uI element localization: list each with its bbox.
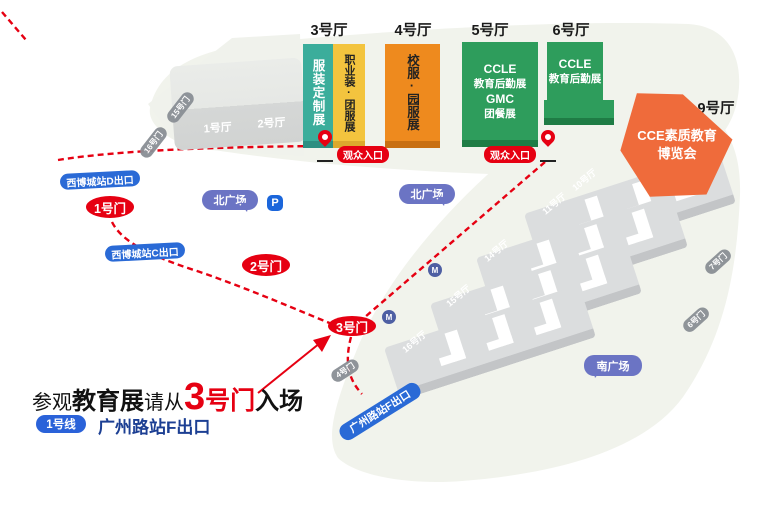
hall-4-label: 4号厅 (386, 19, 440, 40)
hall-6-exhibit-block: CCLE 教育后勤展 (547, 42, 603, 100)
note-seg5: 入场 (255, 381, 303, 416)
entrance1-label: 观众入口 (337, 146, 389, 163)
note-seg4-rest: 号门 (205, 381, 255, 417)
exhibit-garment-custom-text: 服装定制展 (309, 59, 328, 127)
note-seg2: 教育展 (72, 381, 144, 416)
note-text: 参观 教育展 请从 3 号门 入场 (32, 380, 303, 417)
bubble-tail (240, 203, 249, 217)
gate-3: 3号门 (328, 316, 376, 336)
hall-slot (586, 255, 608, 288)
exhibit-uniform-team-block: 职业装·团服展 (333, 44, 365, 148)
hall6-line1: CCLE (559, 56, 592, 72)
metro-logo-icon: M (428, 263, 442, 277)
hall-6-base-bar (544, 100, 614, 125)
hall-slot (632, 209, 654, 242)
bubble-tail (593, 369, 602, 383)
route-gate1-to-gate3 (112, 222, 332, 324)
hall-slot (540, 299, 562, 332)
south-plaza-bubble: 南广场 (584, 355, 642, 376)
bubble-tail (437, 197, 446, 211)
note-seg4-num: 3 (184, 380, 205, 414)
exhibit-uniform-team-text: 职业装·团服展 (341, 54, 357, 132)
hall6-line2: 教育后勤展 (549, 72, 602, 86)
hall-1-label: 1号厅 (203, 119, 232, 137)
metro-logo-icon: M (382, 310, 396, 324)
hall9-line2: 博览会 (657, 145, 696, 163)
hall5-line2: 教育后勤展 (474, 77, 527, 91)
north-plaza-bubble-1: 北广场 (202, 190, 258, 210)
hall5-line3: GMC (486, 91, 514, 107)
parking-icon: P (267, 195, 283, 211)
exhibit-school-uniform-text: 校服·园服展 (403, 54, 422, 131)
hall-2-label: 2号厅 (257, 114, 286, 132)
hall-slot (492, 314, 514, 347)
note-seg3: 请从 (144, 386, 184, 415)
hall5-line4: 团餐展 (484, 107, 516, 121)
hall-5-label: 5号厅 (463, 19, 517, 40)
hall9-line1: CCE素质教育 (637, 127, 716, 145)
exhibit-school-uniform-block: 校服·园服展 (385, 44, 440, 148)
metro-line-badge: 1号线 (36, 415, 86, 433)
route-top-left-corner (2, 12, 26, 40)
note-seg1: 参观 (32, 386, 72, 415)
entrance2-label: 观众入口 (484, 146, 536, 163)
hall-3-label: 3号厅 (302, 19, 356, 40)
hall-5-exhibit-block: CCLE 教育后勤展 GMC 团餐展 (462, 42, 538, 147)
north-plaza-bubble-2: 北广场 (399, 184, 455, 204)
hall5-line1: CCLE (484, 61, 517, 77)
hall-6-label: 6号厅 (544, 19, 598, 40)
note-station-text: 广州路站F出口 (98, 413, 210, 438)
gate-2: 2号门 (242, 254, 290, 276)
hall-slot (445, 330, 467, 363)
expo-map: 10号厅 11号厅 14号厅 15号厅 16号厅 1号厅 2号厅 3号厅 4号厅… (0, 0, 780, 507)
gate-1: 1号门 (86, 196, 134, 218)
note-arrow-head (313, 335, 331, 352)
